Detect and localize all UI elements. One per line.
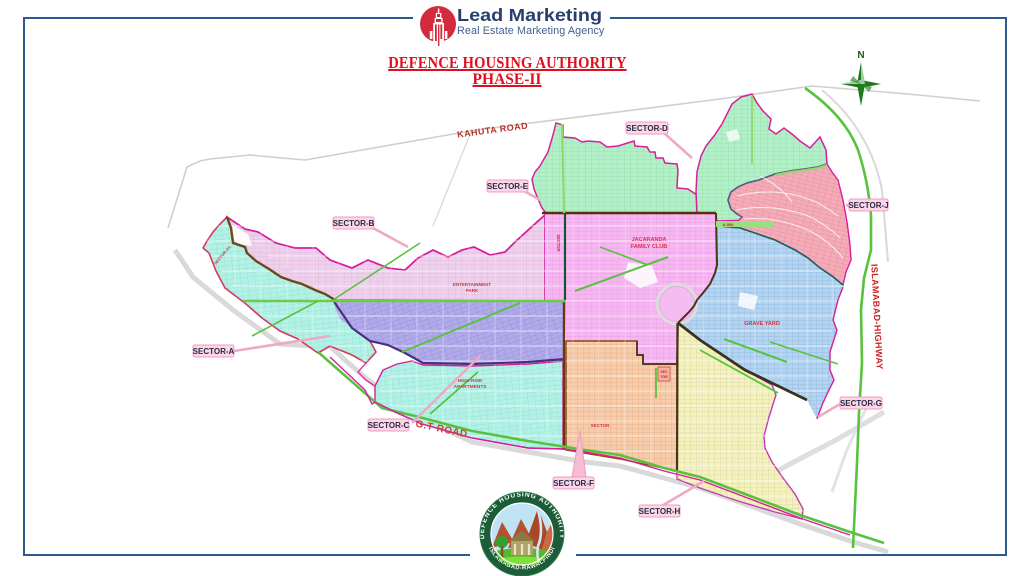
svg-text:TOR: TOR: [660, 375, 668, 379]
svg-text:SECTOR: SECTOR: [591, 423, 610, 428]
svg-text:SECTOR-H: SECTOR-H: [639, 507, 681, 516]
svg-text:KAHUTA ROAD: KAHUTA ROAD: [457, 120, 529, 139]
svg-text:JACARANDA: JACARANDA: [632, 237, 667, 243]
svg-text:SEC: SEC: [660, 370, 668, 374]
svg-text:ISLAMABAD-HIGHWAY: ISLAMABAD-HIGHWAY: [869, 264, 885, 370]
svg-text:SECTOR-C: SECTOR-C: [368, 421, 410, 430]
svg-text:PARK: PARK: [466, 288, 479, 293]
svg-text:SECTOR-J: SECTOR-J: [848, 201, 888, 210]
svg-text:SECTOR-A: SECTOR-A: [193, 347, 235, 356]
svg-text:SECTOR-G: SECTOR-G: [840, 399, 882, 408]
svg-text:SECTOR-E: SECTOR-E: [487, 182, 529, 191]
svg-text:ENTERTAINMENT: ENTERTAINMENT: [453, 282, 491, 287]
svg-text:SECTOR: SECTOR: [556, 234, 561, 251]
svg-text:SECTOR-B: SECTOR-B: [333, 219, 375, 228]
svg-text:SECTOR-D: SECTOR-D: [626, 124, 668, 133]
svg-text:A-956: A-956: [723, 222, 735, 227]
svg-text:GRAVE YARD: GRAVE YARD: [744, 321, 780, 327]
svg-text:FAMILY CLUB: FAMILY CLUB: [631, 244, 667, 250]
svg-text:SECTOR-F: SECTOR-F: [553, 479, 594, 488]
svg-text:HIGH RISE: HIGH RISE: [458, 378, 483, 384]
svg-text:N: N: [857, 50, 864, 61]
svg-text:APARTMENTS: APARTMENTS: [454, 384, 488, 390]
